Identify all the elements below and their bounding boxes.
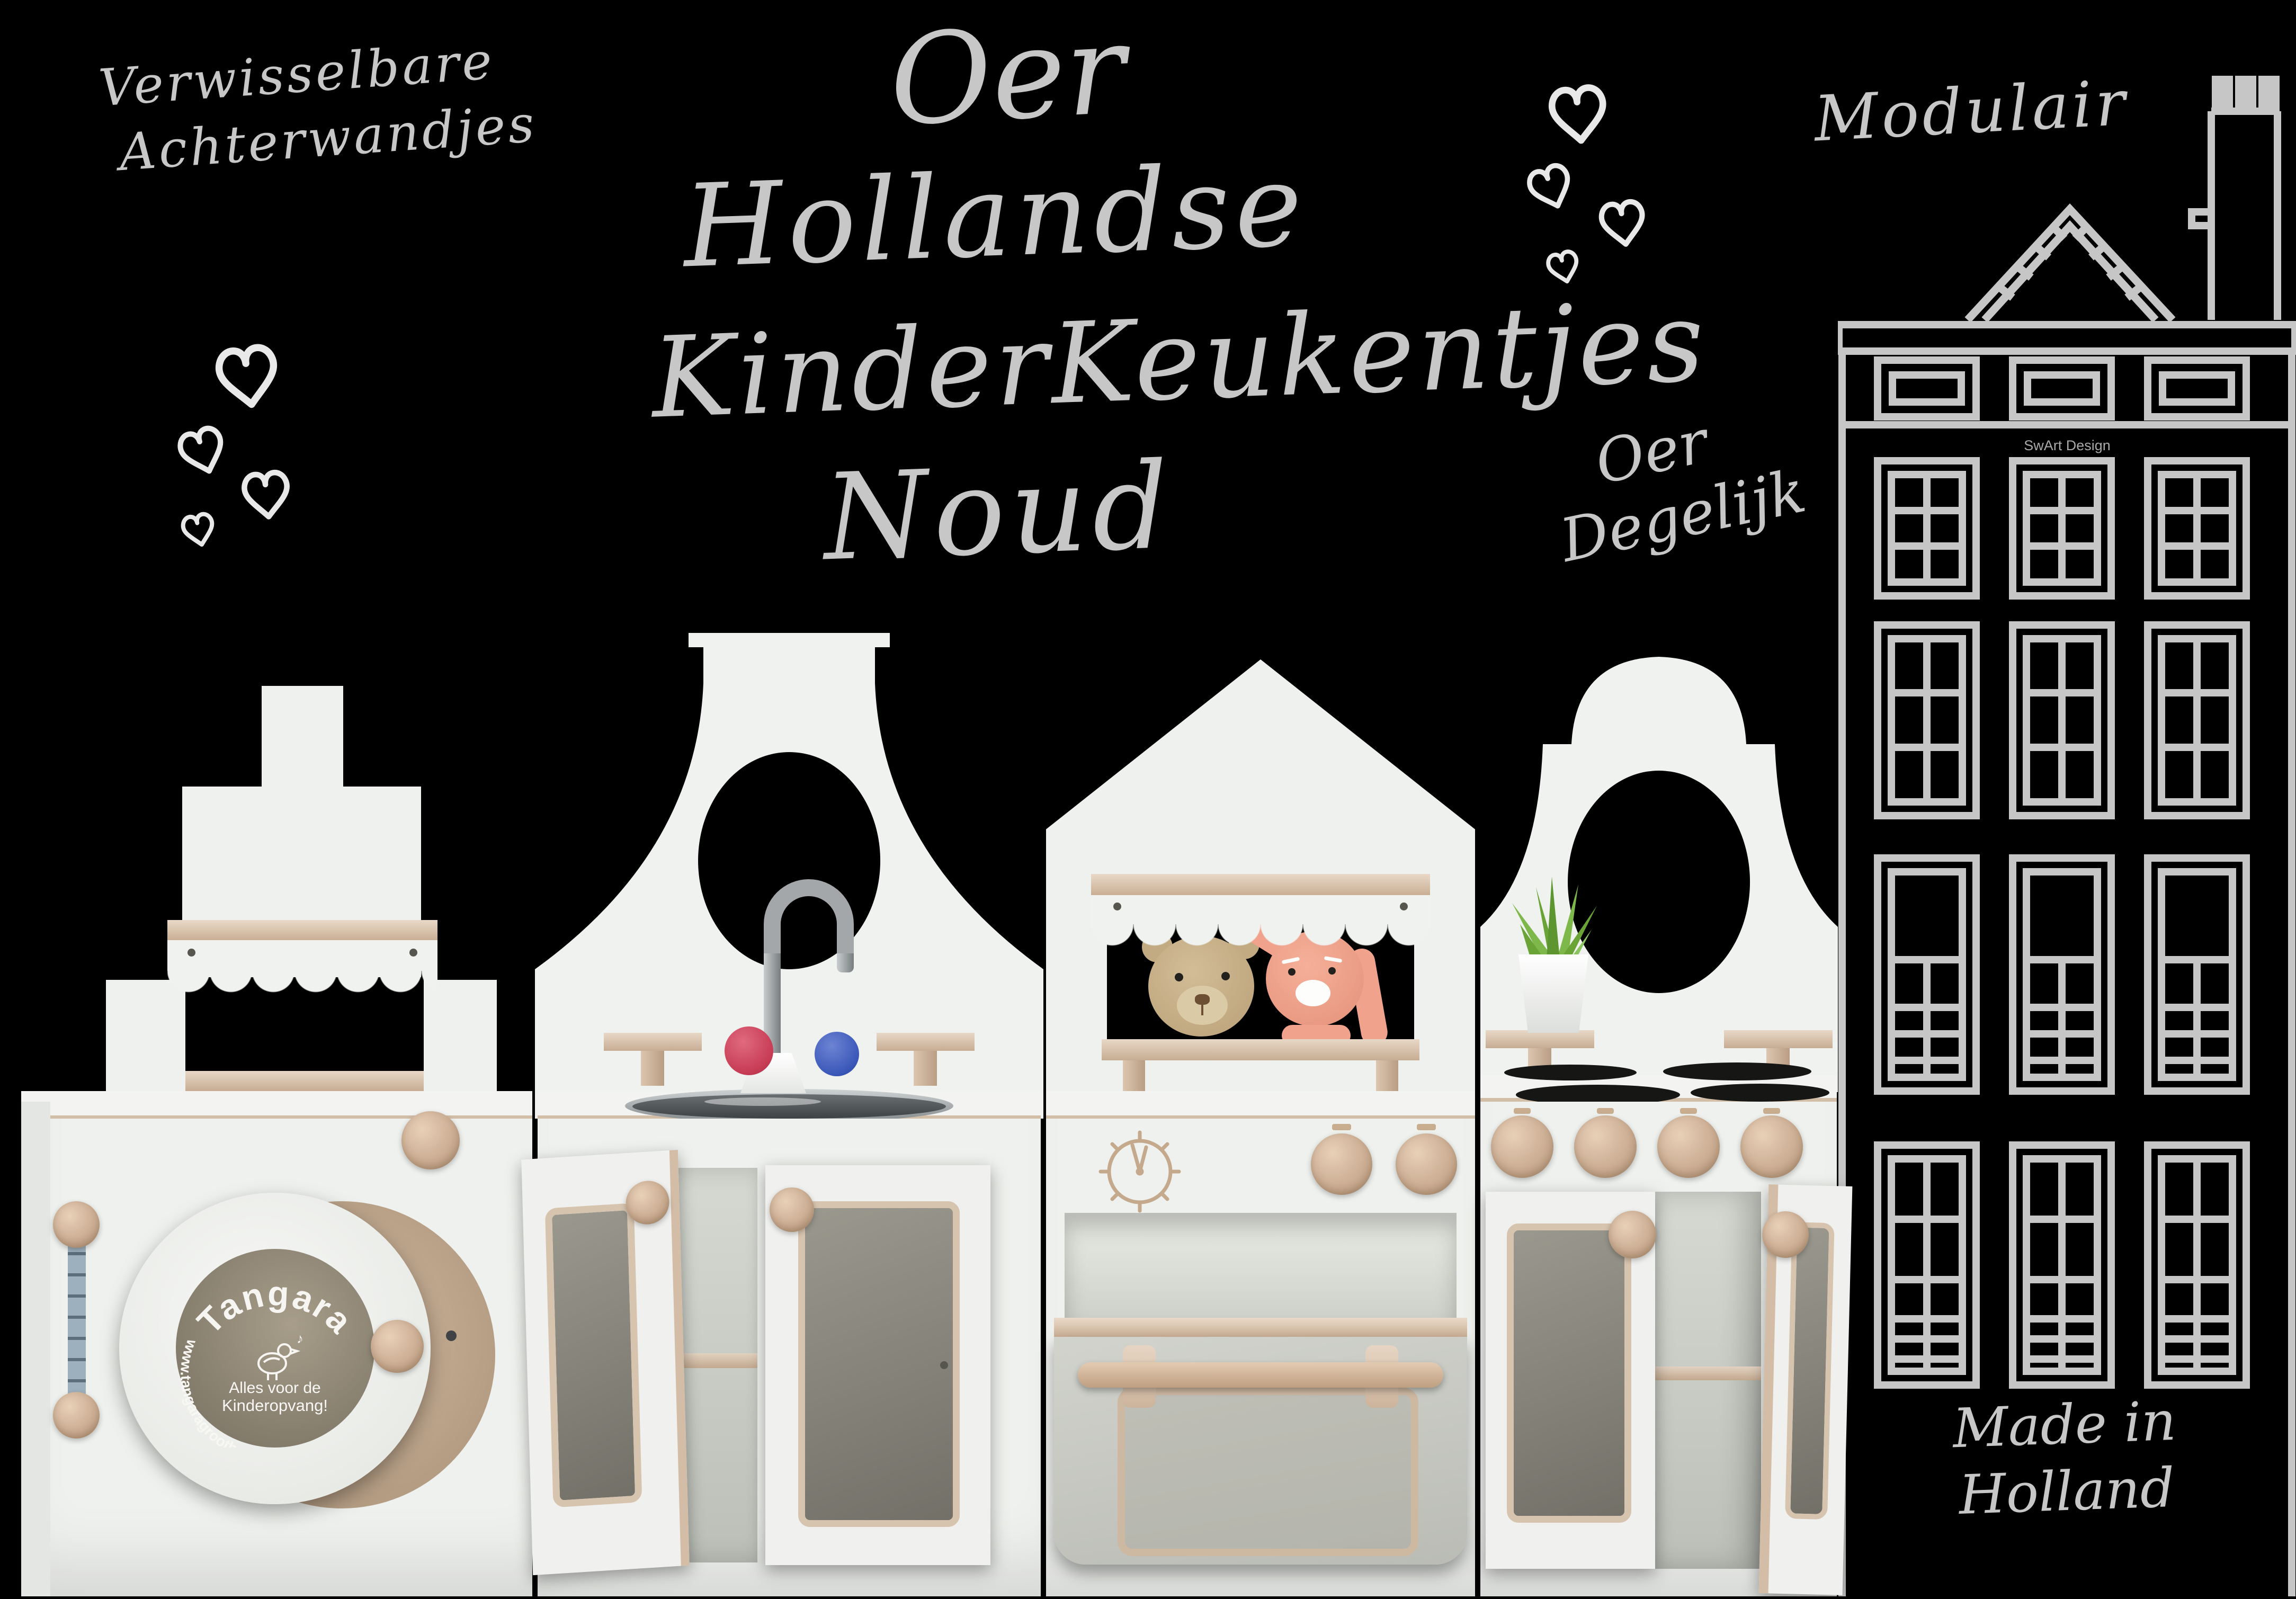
sink-gable-shelf-right — [877, 1033, 975, 1051]
sill-leg — [1376, 1060, 1398, 1091]
heart-icon — [1585, 189, 1660, 257]
washer-door-logo: Tangara ♪ Alles voor de Kinderopvang! ww… — [176, 1249, 374, 1450]
knob-indicator — [1763, 1108, 1780, 1114]
backwalls-note: Verwisselbare Achterwandjes — [97, 33, 538, 180]
poster-canvas: { "poster": { "background_color": "#0000… — [0, 0, 2296, 1596]
washer-side-panel — [21, 1102, 50, 1596]
stove-cabinet-interior — [1655, 1192, 1761, 1569]
house-cornice — [1839, 325, 2295, 351]
bunny-eye — [1288, 968, 1296, 976]
oven-countertop — [1046, 1091, 1475, 1120]
logo-brand: Tangara — [190, 1273, 361, 1341]
washer-countertop — [21, 1091, 532, 1120]
knob-indicator — [1332, 1124, 1351, 1130]
oven-knob — [1396, 1133, 1457, 1195]
awning-scallops — [1091, 924, 1430, 948]
knob-indicator — [1597, 1108, 1614, 1114]
title-line1: Oer — [887, 7, 1128, 144]
house-windows-row-d — [1878, 1145, 2246, 1385]
bear-eye — [1221, 972, 1230, 980]
house-credit: SwArt Design — [2024, 437, 2111, 453]
washer-gable-top — [262, 686, 343, 792]
stove-door-closed — [1486, 1192, 1655, 1569]
door-window — [1785, 1222, 1835, 1520]
door-window — [798, 1201, 960, 1527]
house-windows-row-b — [1878, 625, 2246, 816]
title-line2: Hollandse — [682, 148, 1309, 284]
oven-awning — [1091, 874, 1430, 948]
stove-knob — [1491, 1115, 1553, 1178]
shelf-bracket — [641, 1051, 664, 1086]
made-in-note: Made in Holland — [1881, 1392, 2250, 1525]
oven-door-handle — [1078, 1362, 1443, 1388]
heart-icon — [171, 504, 227, 556]
washer-hinge-knob-bottom — [53, 1392, 100, 1439]
burner-plate — [1663, 1062, 1811, 1080]
bear-eye — [1175, 973, 1183, 981]
burner-plate — [1691, 1084, 1829, 1102]
house-chimney — [2192, 79, 2277, 320]
washer-hinge-bar — [68, 1234, 86, 1414]
washer-window-shelf — [185, 1071, 424, 1091]
awning-wood-bar — [1091, 874, 1430, 895]
music-note-icon: ♪ — [297, 1330, 303, 1346]
shelf-bracket — [914, 1051, 937, 1086]
sturdy-note: Oer Degelijk — [1541, 394, 1810, 571]
sink-door-open — [521, 1150, 690, 1575]
modular-note: Modulair — [1812, 72, 2130, 150]
house-windows-row-a — [1878, 461, 2246, 596]
house-transom-windows — [1878, 360, 2246, 417]
cold-water-knob — [815, 1032, 859, 1076]
awning-wood-bar — [167, 920, 437, 940]
knob-indicator — [1680, 1108, 1697, 1114]
washer-hinge-knob-top — [53, 1201, 100, 1248]
cabinet-shelf — [1655, 1366, 1761, 1380]
door-window — [1507, 1223, 1631, 1523]
sink-door-closed — [765, 1165, 990, 1565]
logo-tagline2: Kinderopvang! — [222, 1396, 328, 1415]
house-windows-row-c — [1878, 858, 2246, 1091]
washer-latch — [446, 1330, 457, 1341]
oven-cavity — [1065, 1213, 1457, 1319]
stove-knob — [1657, 1115, 1720, 1178]
knob-indicator — [1514, 1108, 1531, 1114]
stove-shelf-right — [1724, 1030, 1833, 1048]
succulent-plant — [1499, 855, 1607, 964]
hot-water-knob — [725, 1026, 773, 1075]
bunny-muzzle — [1296, 980, 1330, 1006]
screw-icon — [1113, 903, 1121, 910]
awning-skirt — [167, 940, 437, 971]
stove-door-open — [1759, 1184, 1853, 1595]
bunny-eye — [1328, 967, 1336, 975]
oven-window-sill — [1102, 1039, 1419, 1060]
washer-program-knob — [401, 1111, 460, 1169]
screw-icon — [1400, 903, 1408, 910]
door-window — [545, 1203, 642, 1507]
heart-icon — [199, 330, 296, 422]
house-roof — [1968, 209, 2173, 320]
door-knob — [770, 1187, 814, 1232]
faucet-spout — [837, 953, 854, 972]
awning-skirt — [1091, 895, 1430, 924]
bird-icon — [258, 1344, 297, 1380]
heart-icon — [1511, 150, 1590, 225]
door-knob — [1609, 1211, 1656, 1258]
title-line3: KinderKeukentjes — [650, 286, 1709, 434]
sink-gable-shelf-left — [604, 1033, 702, 1051]
sill-leg — [1123, 1060, 1145, 1091]
oven-door-inner-window — [1118, 1388, 1418, 1556]
logo-tagline1: Alles voor de — [229, 1379, 320, 1397]
washer-awning — [167, 920, 437, 994]
stove-knob — [1574, 1115, 1637, 1178]
oven-door-top-edge — [1054, 1318, 1467, 1337]
sink-bowl — [625, 1089, 953, 1123]
heart-icon — [1532, 73, 1624, 155]
stove-shelf-left — [1486, 1030, 1594, 1048]
oven-clock — [1096, 1127, 1184, 1217]
burner-plate — [1504, 1065, 1637, 1080]
knob-indicator — [1417, 1124, 1436, 1130]
stove-knob — [1740, 1115, 1803, 1178]
screw-icon — [940, 1361, 948, 1369]
oven-knob — [1311, 1133, 1372, 1195]
title-line4: Noud — [821, 447, 1176, 578]
canal-house-drawing: SwArt Design — [1838, 26, 2296, 1599]
screw-icon — [187, 949, 195, 957]
screw-icon — [409, 949, 417, 957]
heart-icon — [229, 460, 304, 529]
door-knob — [626, 1180, 670, 1226]
awning-scallops — [167, 971, 437, 994]
bear-nose — [1195, 994, 1210, 1005]
washer-door-knob — [371, 1320, 424, 1373]
